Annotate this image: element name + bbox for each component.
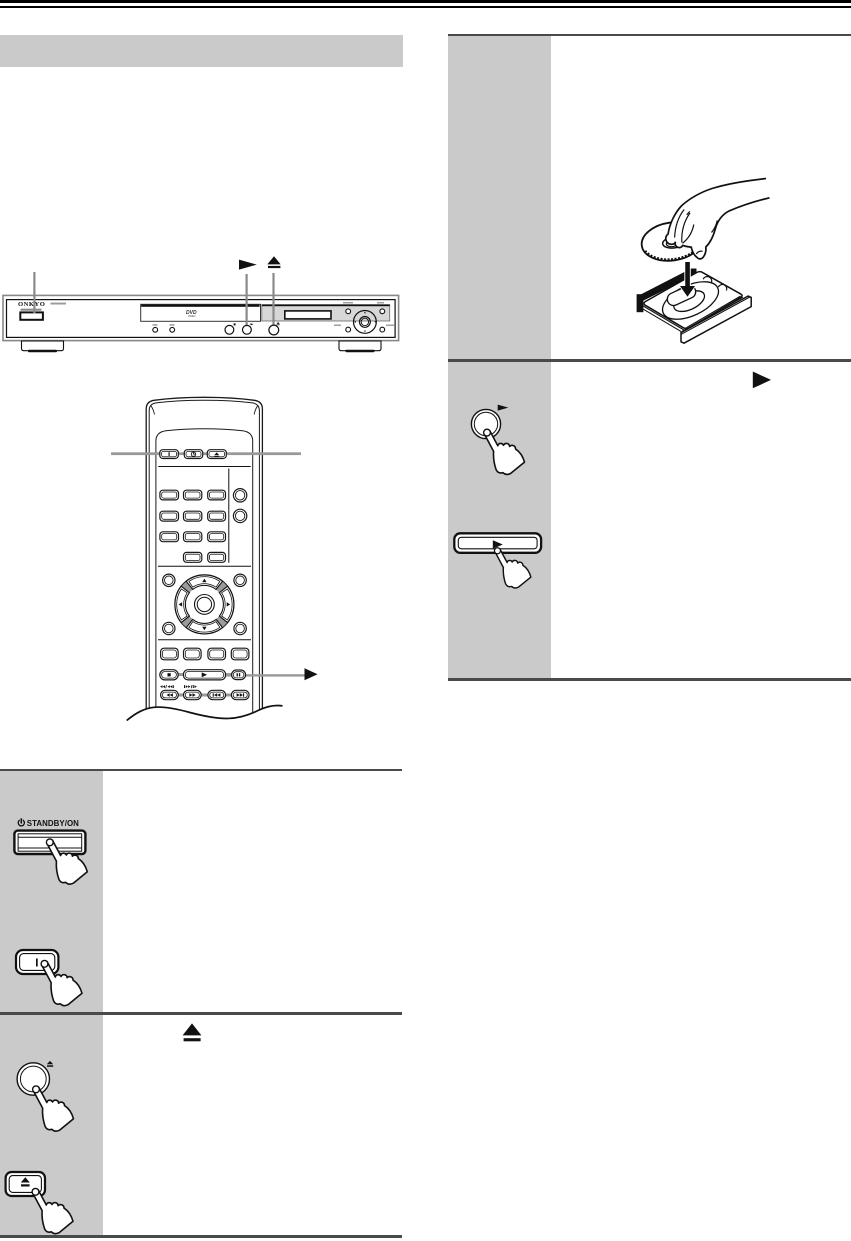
svg-text:ONKYO: ONKYO [18, 301, 45, 308]
svg-text:VIDEO: VIDEO [188, 315, 196, 318]
svg-text:STANDBY/ON: STANDBY/ON [27, 819, 79, 828]
